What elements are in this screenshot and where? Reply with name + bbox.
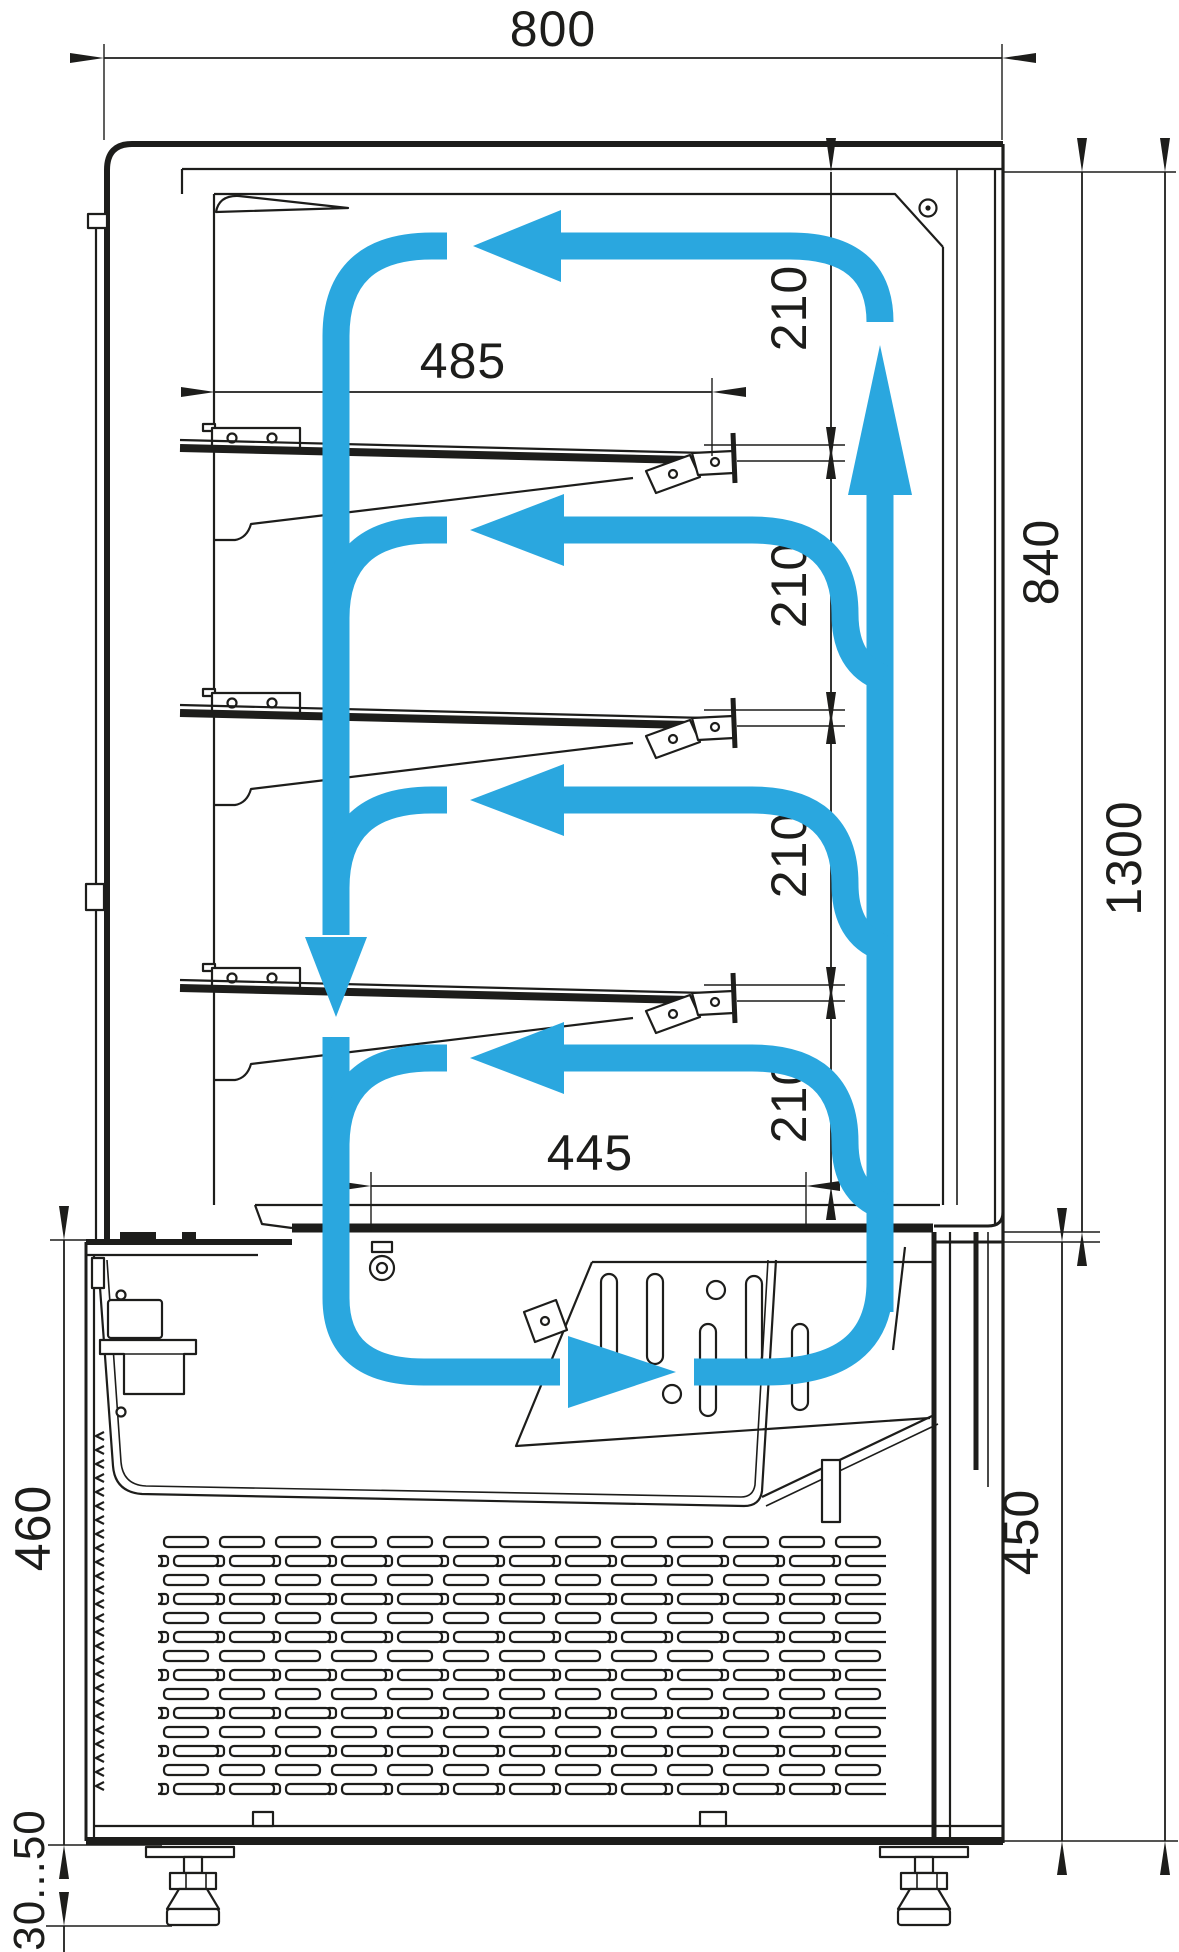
dim-bottom-shelf-length: 445	[371, 1125, 806, 1186]
door-hinge-bottom	[86, 884, 104, 910]
dim-445-label: 445	[547, 1125, 633, 1181]
dim-base-height-left: 460	[5, 1240, 64, 1845]
dim-overall-width: 800	[104, 1, 1002, 58]
airflow-down-arrowhead	[305, 937, 367, 1017]
dim-460-label: 460	[5, 1485, 61, 1571]
airflow-up-arrowhead	[848, 345, 912, 495]
ventilation-grille	[158, 1534, 886, 1800]
dim-450-label: 450	[993, 1489, 1049, 1575]
dim-overall-height: 1300	[1096, 172, 1165, 1841]
shelf-1-pin	[733, 433, 735, 483]
ceiling-bracket	[216, 196, 348, 212]
shelf-1-plate	[180, 448, 731, 461]
door-hinge-top	[88, 214, 107, 228]
airflow-elbow-2	[336, 800, 447, 888]
airflow-left-arrowhead-2	[470, 764, 564, 836]
dim-840-label: 840	[1013, 519, 1069, 605]
hinge-serration	[96, 1432, 104, 1790]
shelf-2-pin	[733, 698, 735, 748]
airflow-branch-2	[564, 800, 883, 948]
airflow-elbow-1	[336, 530, 447, 618]
display-case-section-drawing: 800 485 445 210 210 210 210 840	[0, 0, 1179, 1952]
shelf-3-plate	[180, 988, 731, 1001]
drain-tube	[822, 1460, 840, 1522]
dim-210-label-1: 210	[761, 265, 817, 351]
corner-screw-dot	[925, 205, 930, 210]
dim-800-label: 800	[510, 1, 596, 57]
dim-foot-adjustment: 30...50	[5, 1809, 64, 1952]
glass-bottom-return	[934, 1150, 1003, 1226]
top-inner-line	[182, 169, 1003, 194]
shelf-3-pin	[733, 973, 735, 1023]
foot-right	[898, 1857, 950, 1925]
dim-shelf-gaps: 210 210 210 210	[761, 172, 831, 1186]
left-mount-block	[108, 1300, 162, 1338]
dim-display-height: 840	[1013, 172, 1082, 1232]
dim-1300-label: 1300	[1096, 800, 1152, 915]
airflow-elbow-3	[336, 1058, 447, 1146]
dim-485-label: 485	[420, 333, 506, 389]
airflow-left-arrowhead-1	[470, 494, 564, 566]
dim-shelf-length: 485	[215, 333, 712, 392]
foot-left	[167, 1857, 219, 1925]
technical-drawing-page: 800 485 445 210 210 210 210 840	[0, 0, 1179, 1952]
shelf-2-plate	[180, 713, 731, 726]
airflow-left-arrowhead-top	[473, 210, 561, 282]
dim-30-50-label: 30...50	[5, 1809, 54, 1951]
airflow-branch-1	[564, 530, 883, 678]
